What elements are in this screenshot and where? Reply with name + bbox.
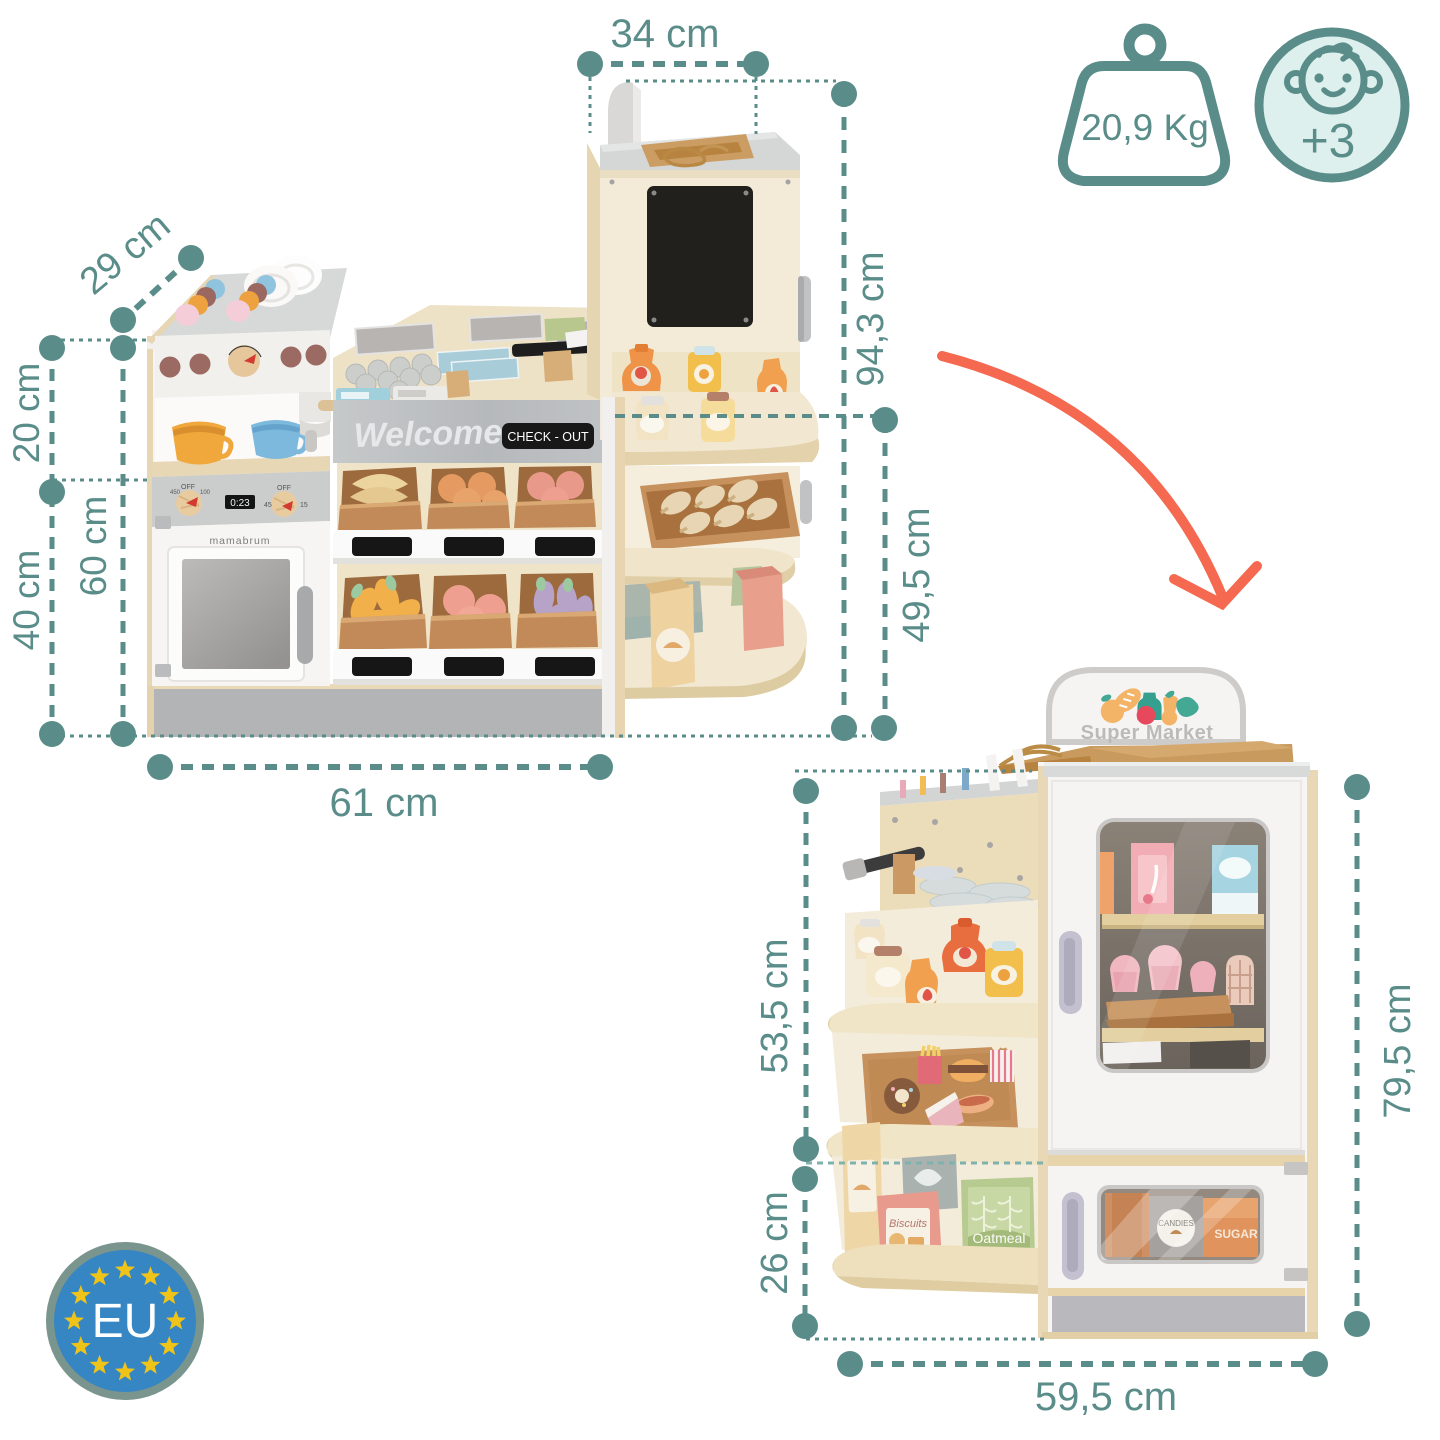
svg-text:53,5 cm: 53,5 cm	[754, 938, 796, 1073]
svg-text:79,5 cm: 79,5 cm	[1377, 983, 1419, 1118]
svg-text:OFF: OFF	[181, 484, 195, 491]
svg-text:Biscuits: Biscuits	[889, 1218, 927, 1230]
svg-text:60 cm: 60 cm	[73, 496, 114, 597]
svg-text:61 cm: 61 cm	[330, 781, 439, 825]
svg-text:40 cm: 40 cm	[6, 550, 47, 651]
svg-text:0:23: 0:23	[230, 498, 250, 509]
svg-text:49,5 cm: 49,5 cm	[896, 507, 938, 642]
svg-text:mamabrum: mamabrum	[209, 535, 270, 547]
svg-text:94,3 cm: 94,3 cm	[850, 251, 892, 386]
svg-text:SUGAR: SUGAR	[1214, 1227, 1258, 1241]
svg-text:45: 45	[264, 502, 272, 509]
svg-text:+3: +3	[1301, 115, 1356, 168]
svg-text:20,9 Kg: 20,9 Kg	[1081, 107, 1209, 148]
svg-text:26 cm: 26 cm	[754, 1191, 796, 1294]
svg-text:Oatmeal: Oatmeal	[973, 1230, 1026, 1246]
svg-text:20 cm: 20 cm	[6, 363, 47, 464]
svg-text:100: 100	[200, 490, 211, 496]
svg-text:59,5 cm: 59,5 cm	[1035, 1375, 1177, 1419]
svg-text:34 cm: 34 cm	[611, 12, 720, 56]
svg-text:Super Market: Super Market	[1081, 722, 1214, 744]
svg-text:15: 15	[300, 502, 308, 509]
svg-text:OFF: OFF	[277, 485, 291, 492]
svg-text:CHECK - OUT: CHECK - OUT	[507, 430, 589, 444]
svg-text:450: 450	[170, 490, 181, 496]
svg-text:Welcome: Welcome	[353, 413, 503, 455]
svg-text:EU: EU	[92, 1295, 159, 1348]
